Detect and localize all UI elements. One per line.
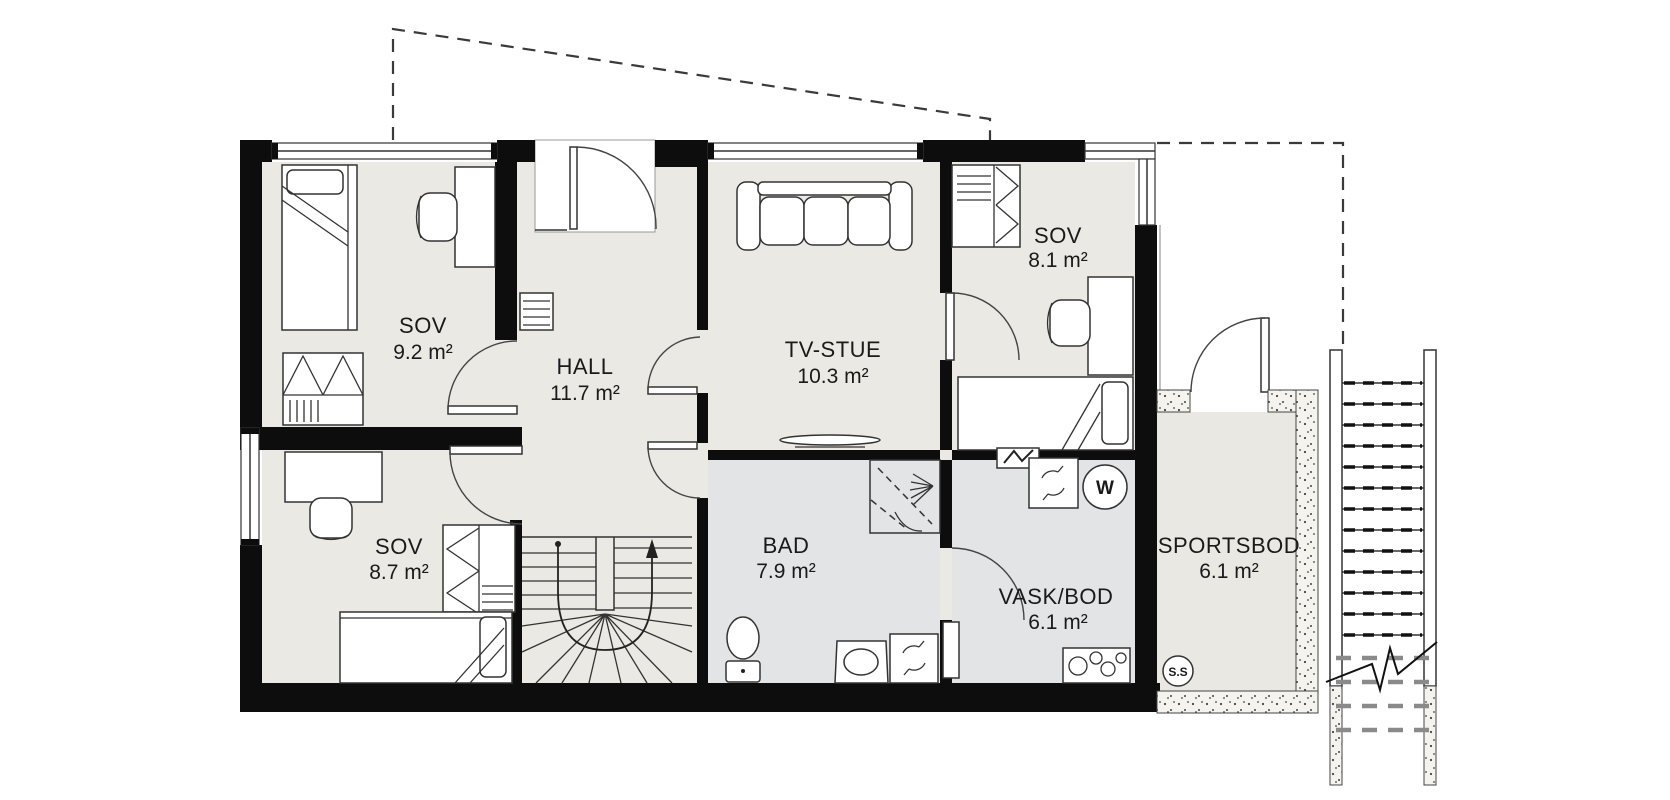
svg-text:W: W [1096, 478, 1114, 499]
room-label-sov2: SOV 8.1 m² [1028, 223, 1088, 272]
floor-plan-page: W S.S [0, 0, 1670, 800]
bed-sov2 [958, 377, 1133, 450]
water-heater-symbol: W [1083, 465, 1127, 509]
floor-plan: W S.S [0, 0, 1670, 800]
svg-text:TV-STUE: TV-STUE [785, 337, 881, 362]
entry-porch [535, 140, 655, 232]
svg-text:SOV: SOV [399, 313, 447, 338]
wardrobe-sov2 [952, 165, 1020, 247]
wall-sov1-hall [495, 162, 517, 340]
window-sov1-top [272, 143, 497, 159]
window-tvstue-top [708, 143, 923, 159]
svg-text:10.3 m²: 10.3 m² [797, 365, 868, 388]
svg-text:SOV: SOV [375, 534, 423, 559]
hall-shaft [520, 293, 553, 330]
sports-storage-marker: S.S [1163, 656, 1193, 686]
dryer-vask [1029, 458, 1078, 508]
bed-sov3 [340, 612, 512, 683]
washing-machine-bad [890, 634, 938, 683]
svg-text:8.7 m²: 8.7 m² [369, 561, 429, 584]
svg-text:SOV: SOV [1034, 223, 1082, 248]
svg-text:8.1 m²: 8.1 m² [1028, 249, 1088, 272]
wardrobe-sov1 [283, 353, 363, 425]
svg-text:11.7 m²: 11.7 m² [550, 382, 620, 405]
svg-text:7.9 m²: 7.9 m² [756, 560, 816, 583]
laundry-sink [1063, 648, 1130, 683]
wardrobe-sov3 [443, 525, 515, 614]
sofa [737, 182, 912, 250]
svg-text:6.1 m²: 6.1 m² [1199, 560, 1259, 583]
svg-text:SPORTSBOD: SPORTSBOD [1158, 533, 1300, 558]
svg-text:9.2 m²: 9.2 m² [393, 341, 453, 364]
sink-bad [835, 641, 888, 683]
window-sov3-left [241, 428, 259, 545]
svg-text:HALL: HALL [556, 354, 613, 379]
toilet [726, 617, 760, 682]
svg-text:VASK/BOD: VASK/BOD [999, 584, 1114, 609]
door-sportsbod [1191, 318, 1269, 392]
svg-text:S.S: S.S [1168, 665, 1187, 679]
bed-sov1 [282, 165, 357, 330]
exterior-stairs [1326, 350, 1437, 785]
svg-text:6.1 m²: 6.1 m² [1028, 611, 1088, 634]
svg-text:BAD: BAD [763, 533, 810, 558]
